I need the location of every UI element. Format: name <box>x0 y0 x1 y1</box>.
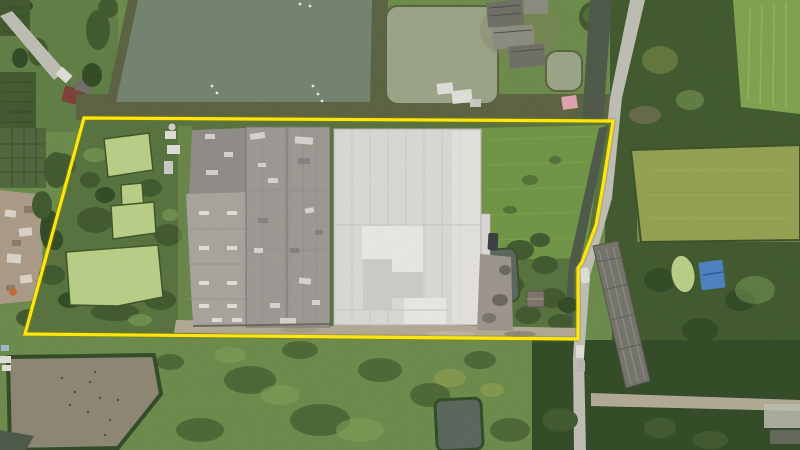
grain-overlay <box>0 0 800 450</box>
aerial-photo <box>0 0 800 450</box>
aerial-photo-canvas <box>0 0 800 450</box>
